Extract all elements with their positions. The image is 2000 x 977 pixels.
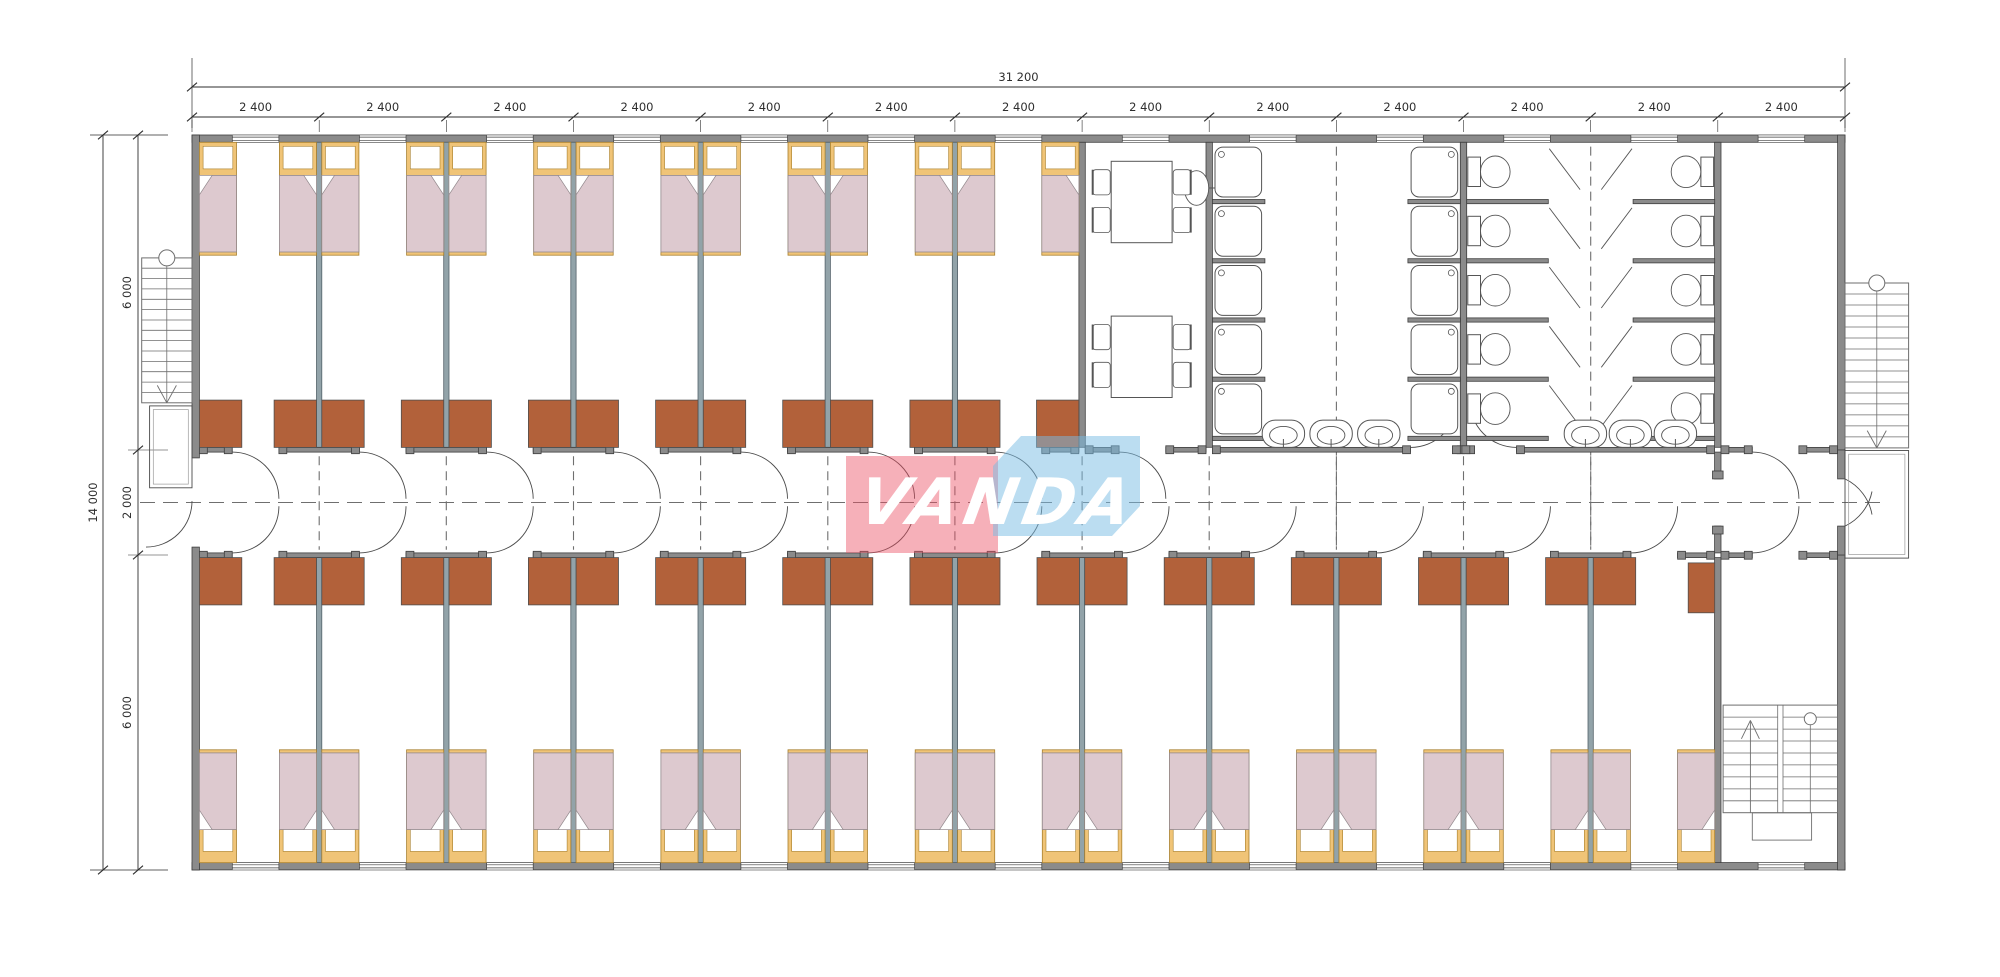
door-swing [487,506,534,553]
stall-door [1549,208,1580,249]
partition-wall [825,558,830,863]
shower-stall [1408,325,1461,382]
door-swing [614,452,661,499]
floor-plan-canvas: 31 2002 4002 4002 4002 4002 4002 4002 40… [0,0,2000,977]
bed [788,142,825,255]
toilet-tank [1468,335,1481,364]
bed [703,750,740,863]
window-opening [1758,863,1805,870]
corridor-wall-segment [406,553,487,558]
shower-tray [1411,206,1458,256]
external-staircase [1845,275,1909,448]
door-swing [1250,506,1297,553]
toilet-bowl [1481,215,1511,247]
dining-chair [1093,325,1111,350]
corridor-wall-segment [1550,553,1631,558]
wall-end-cap [1799,551,1807,559]
wall-end-cap [1198,446,1206,454]
stair-arrow [1867,431,1877,448]
stall-divider [1408,259,1461,263]
bed-pillow [1300,829,1330,852]
stall-door [1601,267,1632,308]
wardrobe [830,400,872,447]
bed-pillow [1216,829,1246,852]
corridor-wall-segment [915,553,996,558]
bed [1424,750,1461,863]
partition-wall [1334,558,1339,863]
corridor-wall-segment [1423,553,1504,558]
window-opening [1250,135,1297,142]
bed [958,142,995,255]
chair-seat [1093,170,1111,195]
stair-start-post [1804,713,1816,725]
bed-pillow [665,146,695,169]
stair-start-post [159,250,175,266]
bed-pillow [834,146,864,169]
exterior-wall [1715,142,1721,447]
corridor-wall-segment [406,447,487,452]
toilet-bowl [1481,156,1511,188]
shower-tray [1411,147,1458,197]
bed-pillow [580,146,610,169]
stall-divider [1408,200,1461,204]
dimension-label-module: 2 400 [493,100,526,114]
stall-divider [1467,318,1549,322]
partition-wall [444,142,449,447]
bed [1042,750,1079,863]
bed-blanket [1551,753,1588,830]
window-opening [1122,863,1169,870]
wardrobe [910,400,952,447]
corridor-wall-segment [533,553,614,558]
dimension-label-segment: 6 000 [120,696,134,729]
shower-tray [1215,266,1262,316]
toilet-bowl [1671,334,1701,366]
shower-tray [1411,384,1458,434]
chair-seat [1093,325,1111,350]
wall-end-cap [1678,551,1686,559]
shower-stall [1408,266,1461,323]
bed-pillow [537,146,567,169]
stair-arrow [157,385,167,402]
wardrobe [1212,558,1254,605]
bed-pillow [1428,829,1458,852]
dimension-label-module: 2 400 [1129,100,1162,114]
wardrobe [656,558,698,605]
exterior-wall [1838,450,1845,479]
dimension-label-module: 2 400 [1638,100,1671,114]
bed [322,142,359,255]
bed-pillow [410,829,440,852]
corridor-wall-segment [1212,447,1410,452]
toilet-bowl [1671,274,1701,306]
stall-divider [1212,259,1265,263]
stall-divider [1467,436,1549,440]
dimension-label-module: 2 400 [621,100,654,114]
bed-pillow [453,829,483,852]
wardrobe [199,558,241,605]
partition-wall [1079,558,1084,863]
shower-tray [1215,384,1262,434]
exterior-wall [1838,526,1845,555]
bed-pillow [834,829,864,852]
bed [1170,750,1207,863]
dining-chair [1093,362,1111,387]
window-opening [487,135,534,142]
bed-blanket [1297,753,1334,830]
window-opening [741,863,788,870]
bed-pillow [326,146,356,169]
wardrobe [274,558,316,605]
wardrobe [783,400,825,447]
dimension-label-module: 2 400 [1002,100,1035,114]
bed [534,750,571,863]
dimension-label-module: 2 400 [748,100,781,114]
toilet-tank [1468,216,1481,245]
wash-basin [1262,420,1304,447]
partition-wall [698,142,703,447]
partition-wall [1588,558,1593,863]
window-opening [359,135,406,142]
shower-stall [1408,147,1461,204]
bed-blanket [322,753,359,830]
chair-seat [1093,207,1111,232]
shower-stall [1212,147,1265,204]
partition-wall [1461,558,1466,863]
partition-wall [952,142,957,447]
bed-pillow [410,146,440,169]
bed [449,750,486,863]
bed-blanket [1466,753,1503,830]
bed-pillow [961,146,991,169]
toilet-bowl [1481,274,1511,306]
bed-pillow [326,829,356,852]
wall-end-cap [1212,446,1220,454]
bed [703,142,740,255]
corridor-wall-segment [279,553,360,558]
wash-basin [1310,420,1352,447]
door-swing [741,452,788,499]
door-swing [1752,506,1799,553]
toilet-tank [1701,216,1714,245]
partition-wall [698,558,703,863]
window-opening [868,863,915,870]
shower-tray [1411,325,1458,375]
stall-door [1549,267,1580,308]
stair-arrow [1741,720,1750,738]
partition-wall [825,142,830,447]
dimension-label-segment: 6 000 [120,276,134,309]
bed-pillow [1173,829,1203,852]
bed [1085,750,1122,863]
window-opening [614,135,661,142]
stall-divider [1408,318,1461,322]
wall-end-cap [1517,446,1525,454]
bed-blanket [1042,753,1079,830]
dimension-label-total: 31 200 [998,70,1038,84]
stall-door [1549,326,1580,367]
bed [322,750,359,863]
wall-end-cap [1462,446,1470,454]
dimension-label-module: 2 400 [875,100,908,114]
toilet-stall [1467,208,1580,263]
bed-pillow [203,146,233,169]
wardrobe [703,400,745,447]
chair-seat [1173,170,1191,195]
stall-divider [1467,377,1549,381]
toilet-stall [1467,386,1580,441]
window-opening [1758,135,1805,142]
dimension-label-module: 2 400 [1511,100,1544,114]
exterior-wall [1079,142,1085,447]
window-opening [232,863,279,870]
exterior-wall [192,547,199,870]
toilet-bowl [1671,156,1701,188]
stall-divider [1467,259,1549,263]
logo-text-group: VANDA [853,465,1142,539]
toilet-stall [1467,267,1580,322]
bed-pillow [1343,829,1373,852]
bed-pillow [707,829,737,852]
toilet-bowl [1481,393,1511,425]
window-opening [1504,863,1551,870]
bed [1042,142,1079,255]
chair-seat [1173,207,1191,232]
external-staircase [142,250,192,403]
corridor-wall-segment [788,447,869,452]
bed [279,750,316,863]
wall-end-cap [1744,446,1752,454]
bed-pillow [1555,829,1585,852]
toilet-bowl [1481,334,1511,366]
exterior-wall [1715,558,1721,863]
door-swing [487,452,534,499]
stall-divider [1467,200,1549,204]
floor-plan-page: 31 2002 4002 4002 4002 4002 4002 4002 40… [0,0,2000,977]
bed-pillow [792,829,822,852]
wardrobe [1037,558,1079,605]
dimension-label-module: 2 400 [1765,100,1798,114]
bed-pillow [1681,829,1711,852]
dining-chair [1173,362,1191,387]
window-opening [1250,863,1297,870]
wardrobe [528,558,570,605]
toilet-tank [1701,335,1714,364]
door-swing [359,452,406,499]
shower-stall [1408,206,1461,263]
wall-end-cap [1721,551,1729,559]
window-opening [1377,863,1424,870]
corridor-wall-segment [1517,447,1715,452]
bed-blanket [449,753,486,830]
window-opening [487,863,534,870]
bed [1678,750,1715,863]
wardrobe [1688,563,1715,613]
stall-divider [1212,377,1265,381]
platform-outline [150,406,192,488]
dimension-label-module: 2 400 [366,100,399,114]
shower-tray [1215,206,1262,256]
wash-basin [1654,420,1696,447]
wall-end-cap [1707,551,1715,559]
wardrobe [910,558,952,605]
logo-text: VANDA [853,465,1142,539]
wardrobe [576,400,618,447]
wall-end-cap [1744,551,1752,559]
window-opening [1122,135,1169,142]
bed [788,750,825,863]
wardrobe [274,400,316,447]
bed [830,142,867,255]
door-swing [1752,452,1799,499]
wall-end-cap [1721,446,1729,454]
wash-basin [1358,420,1400,447]
dining-chair [1093,207,1111,232]
corridor-wall-segment [660,447,741,452]
door-swing [1377,506,1424,553]
bed-pillow [580,829,610,852]
bed-pillow [203,829,233,852]
door-swing [1504,506,1551,553]
wardrobe [401,400,443,447]
bed [407,142,444,255]
bed-pillow [1046,146,1076,169]
bed [534,142,571,255]
wardrobe [1419,558,1461,605]
dimension-label-module: 2 400 [239,100,272,114]
platform-inner-line [1849,454,1905,554]
partition-wall [317,558,322,863]
exterior-wall [1713,471,1724,479]
wardrobe [958,400,1000,447]
dining-chair [1173,170,1191,195]
toilet-stall [1601,326,1714,381]
bed-pillow [537,829,567,852]
bed [1339,750,1376,863]
bed-blanket [1212,753,1249,830]
bed [199,142,236,255]
partition-wall [317,142,322,447]
chair-seat [1093,362,1111,387]
bed [830,750,867,863]
wardrobe [656,400,698,447]
dining-table [1111,316,1172,397]
window-opening [232,135,279,142]
bed [661,142,698,255]
bed [279,142,316,255]
wardrobe [703,558,745,605]
bed [661,750,698,863]
dimension-label-module: 2 400 [1256,100,1289,114]
toilet-bowl [1671,215,1701,247]
shower-stall [1408,384,1461,441]
wardrobe [1339,558,1381,605]
bed-pillow [665,829,695,852]
wall-end-cap [1830,551,1838,559]
bed [407,750,444,863]
corridor-wall-segment [915,447,996,452]
stair-arrow [1750,720,1759,738]
bed [1593,750,1630,863]
corridor-wall-segment [660,553,741,558]
stall-divider [1408,436,1461,440]
shower-stall [1212,325,1265,382]
partition-wall [571,142,576,447]
window-opening [1377,135,1424,142]
stall-divider [1212,200,1265,204]
wall-end-cap [1452,446,1460,454]
bed-pillow [1597,829,1627,852]
stall-divider [1408,377,1461,381]
shower-tray [1411,266,1458,316]
bed-pillow [1046,829,1076,852]
toilet-stall [1601,208,1714,263]
exterior-wall [1838,135,1845,450]
wardrobe [1546,558,1588,605]
wardrobe [449,400,491,447]
bed [576,142,613,255]
wardrobe [1466,558,1508,605]
window-opening [868,135,915,142]
wardrobe [401,558,443,605]
bed-pillow [283,146,313,169]
platform-inner-line [153,410,188,485]
stall-divider [1212,318,1265,322]
window-opening [359,863,406,870]
toilet-stall [1467,149,1580,204]
bed-blanket [958,753,995,830]
toilet-stall [1601,149,1714,204]
stall-door [1549,149,1580,190]
dining-chair [1173,325,1191,350]
bed-pillow [1470,829,1500,852]
wardrobe [449,558,491,605]
toilet-tank [1468,394,1481,423]
stall-divider [1633,377,1715,381]
shower-tray [1215,147,1262,197]
toilet-tank [1468,276,1481,305]
bed [199,750,236,863]
dimension-label-module: 2 400 [1383,100,1416,114]
entrance-platform [150,406,192,488]
wardrobe [199,400,241,447]
entrance-platform [1845,451,1909,559]
internal-staircase [1723,705,1838,840]
wardrobe [528,400,570,447]
corridor-wall-segment [1042,553,1123,558]
bed-pillow [1088,829,1118,852]
wardrobe [1291,558,1333,605]
door-swing [359,506,406,553]
shower-stall [1212,206,1265,263]
wash-basin [1609,420,1651,447]
toilet-tank [1701,157,1714,186]
bed [449,142,486,255]
exterior-wall [192,135,199,458]
wall-end-cap [1707,446,1715,454]
wall-end-cap [1166,446,1174,454]
partition-wall [1207,558,1212,863]
bed-blanket [534,753,571,830]
toilet-tank [1701,394,1714,423]
stall-divider [1633,200,1715,204]
platform-outline [1845,451,1909,559]
exterior-wall [1460,142,1466,447]
wardrobe [1085,558,1127,605]
window-opening [995,135,1042,142]
stall-divider [1633,318,1715,322]
window-opening [1631,863,1678,870]
